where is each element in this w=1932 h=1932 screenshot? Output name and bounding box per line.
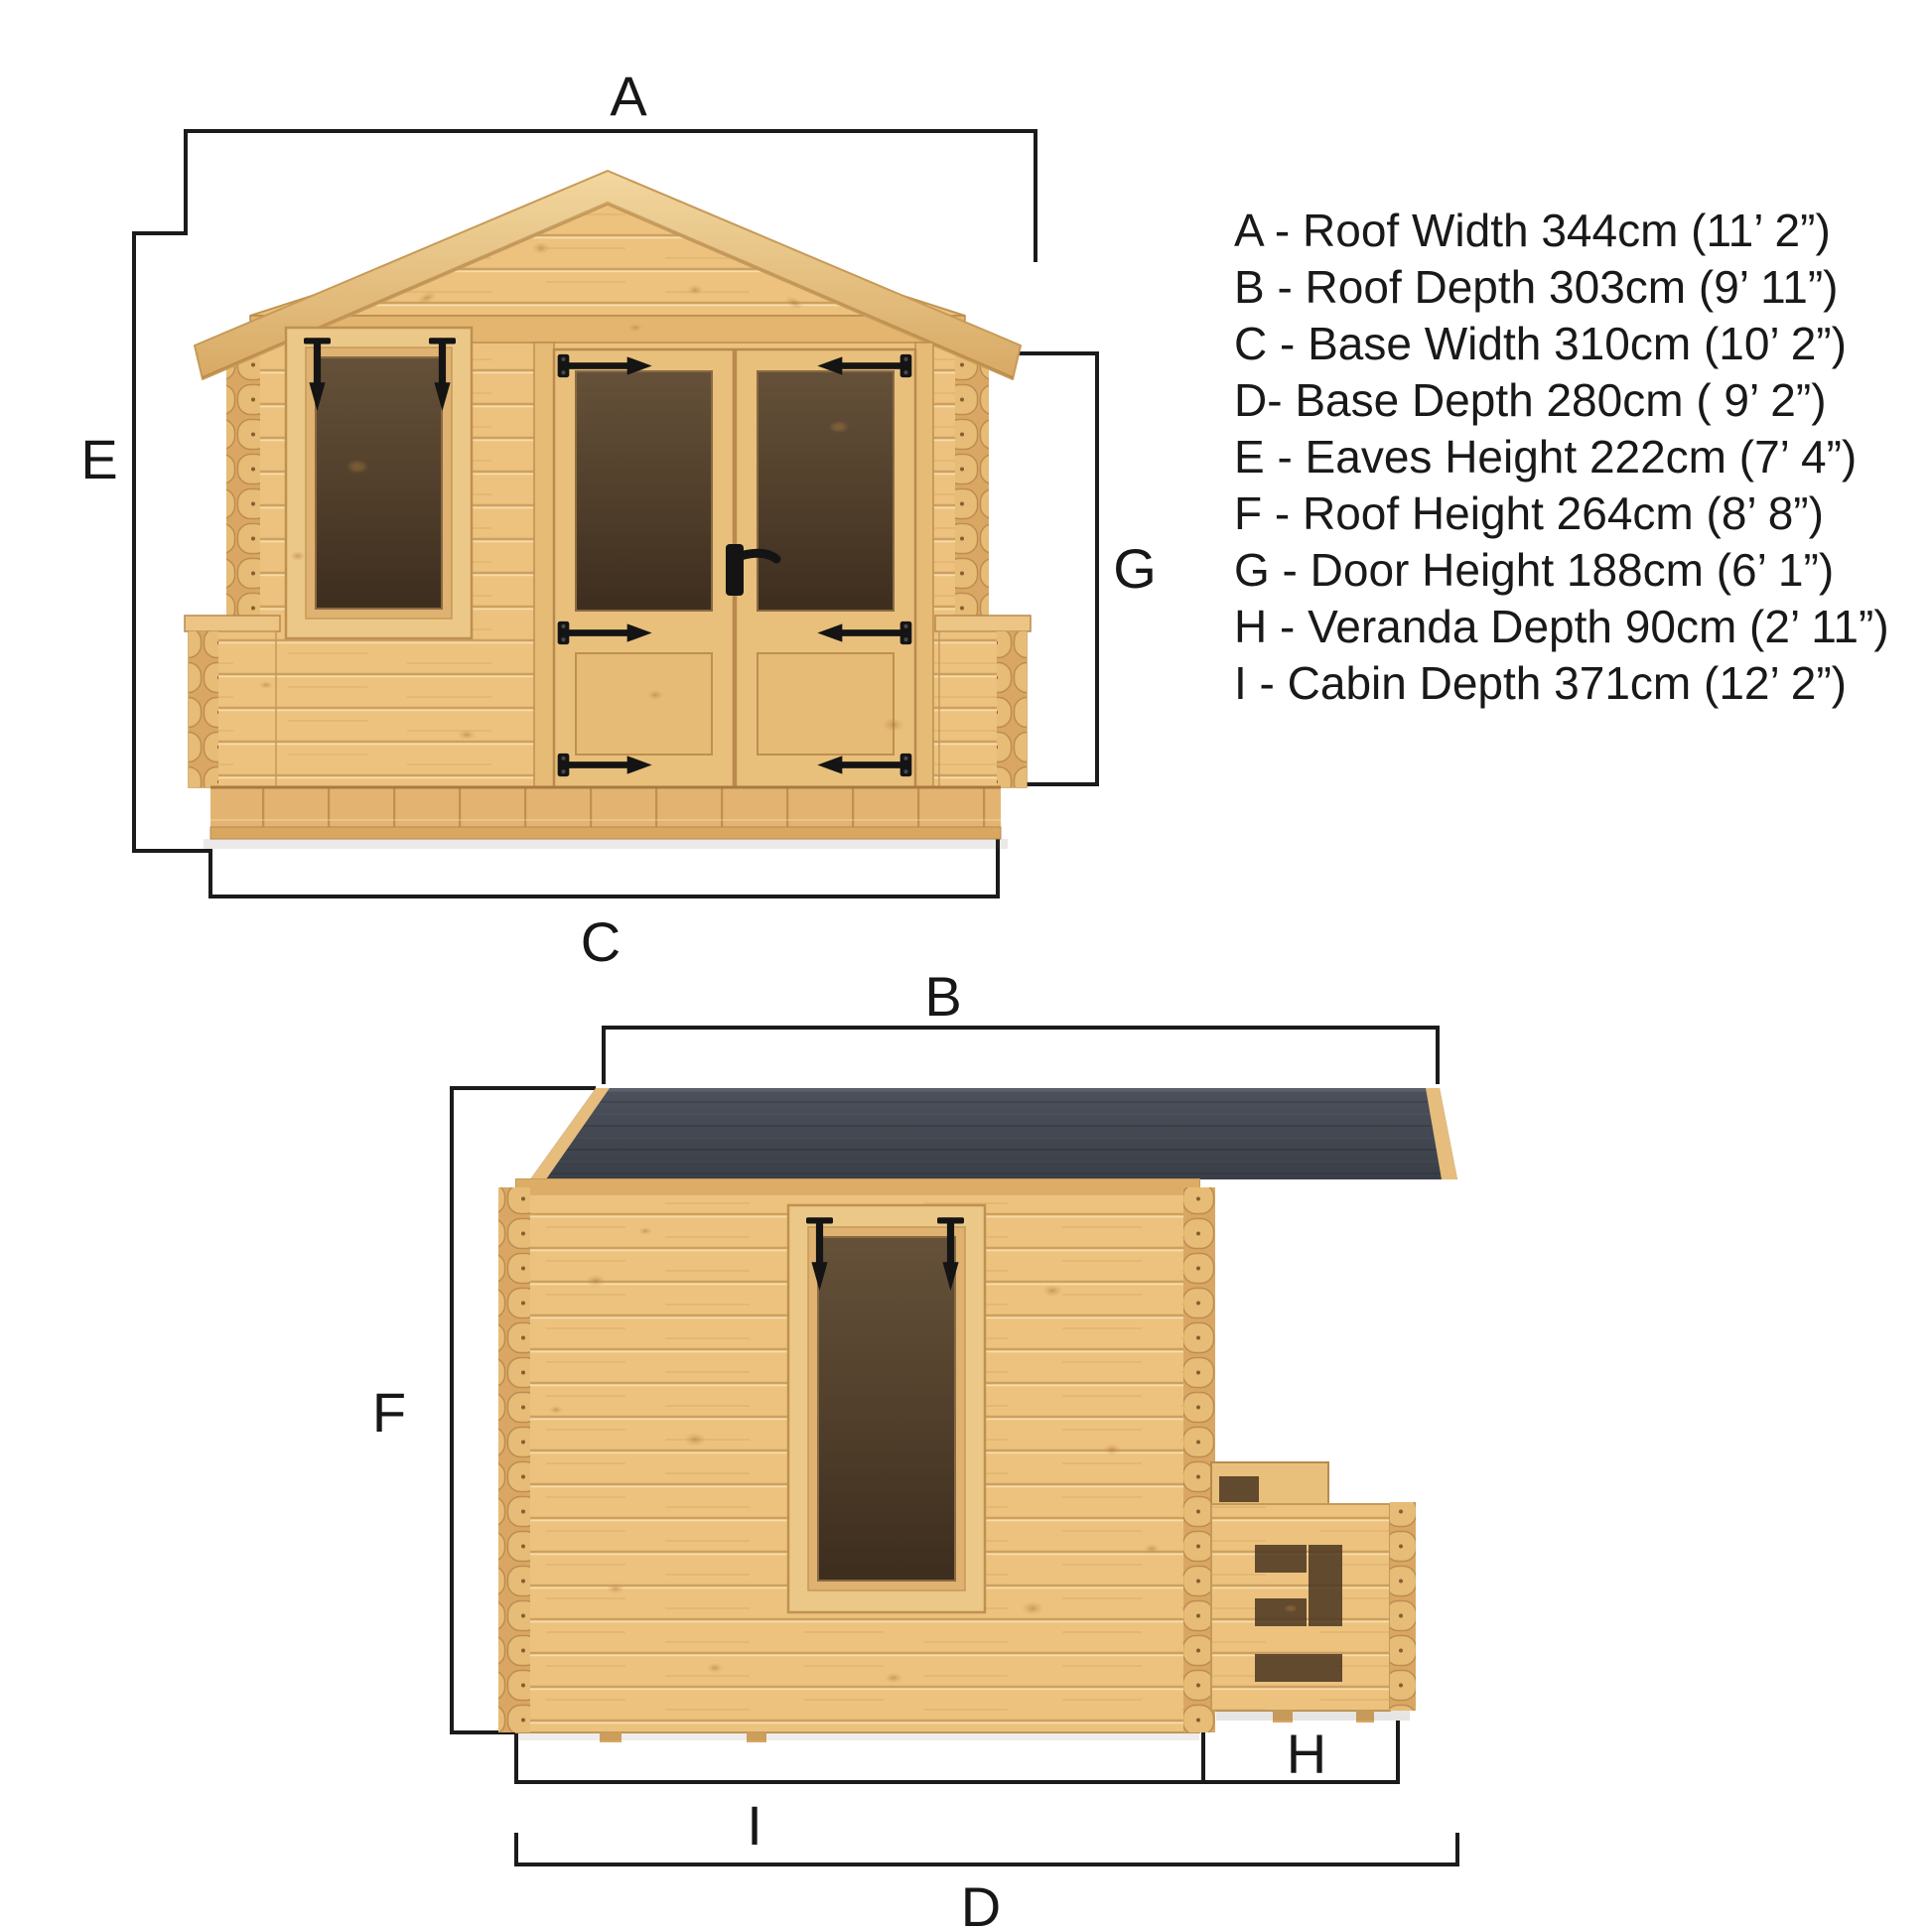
front-door-right-glass: [758, 371, 894, 611]
legend-item-door-height: G - Door Height 188cm (6’ 1”): [1234, 542, 1919, 599]
side-window: [788, 1205, 985, 1612]
cabin-dimension-diagram: A E G C: [0, 0, 1932, 1932]
dim-label-f: F: [372, 1381, 406, 1444]
side-wall-top-beam: [516, 1179, 1199, 1195]
dim-label-a: A: [610, 65, 647, 127]
dimension-legend: A - Roof Width 344cm (11’ 2”) B - Roof D…: [1234, 203, 1919, 712]
dim-bracket-d: [516, 1835, 1457, 1864]
dim-label-e: E: [80, 428, 117, 490]
front-door-left-glass: [576, 371, 712, 611]
front-window: [286, 328, 472, 638]
legend-item-base-width: C - Base Width 310cm (10’ 2”): [1234, 316, 1919, 372]
legend-item-cabin-depth: I - Cabin Depth 371cm (12’ 2”): [1234, 655, 1919, 712]
side-base-shadow: [516, 1732, 1199, 1742]
dim-label-i: I: [747, 1794, 762, 1857]
front-door-right-panel: [758, 653, 894, 755]
side-veranda-log-corner: [1390, 1502, 1416, 1711]
dim-label-g: G: [1113, 537, 1157, 600]
side-roof: [530, 1088, 1457, 1179]
dim-label-h: H: [1287, 1723, 1326, 1785]
dim-label-d: D: [961, 1875, 1001, 1932]
front-deck: [204, 787, 1008, 849]
side-window-glass: [818, 1237, 955, 1581]
legend-item-roof-height: F - Roof Height 264cm (8’ 8”): [1234, 485, 1919, 542]
side-elevation: B F H I D: [372, 965, 1457, 1932]
front-elevation: A E G C: [80, 65, 1156, 973]
dim-label-b: B: [924, 965, 961, 1028]
legend-item-roof-width: A - Roof Width 344cm (11’ 2”): [1234, 203, 1919, 259]
front-veranda-rail-right: [935, 616, 1031, 787]
front-double-doors: [534, 343, 933, 787]
side-left-log-corner: [498, 1187, 530, 1732]
legend-item-roof-depth: B - Roof Depth 303cm (9’ 11”): [1234, 259, 1919, 316]
front-veranda-rail-left: [185, 616, 280, 787]
dim-bracket-b: [604, 1028, 1438, 1082]
front-window-glass: [316, 357, 442, 609]
dim-label-c: C: [581, 910, 621, 973]
legend-item-base-depth: D- Base Depth 280cm ( 9’ 2”): [1234, 372, 1919, 429]
front-door-left-panel: [576, 653, 712, 755]
legend-item-eaves-height: E - Eaves Height 222cm (7’ 4”): [1234, 429, 1919, 485]
side-veranda: [1211, 1462, 1416, 1723]
legend-item-veranda-depth: H - Veranda Depth 90cm (2’ 11”): [1234, 599, 1919, 655]
